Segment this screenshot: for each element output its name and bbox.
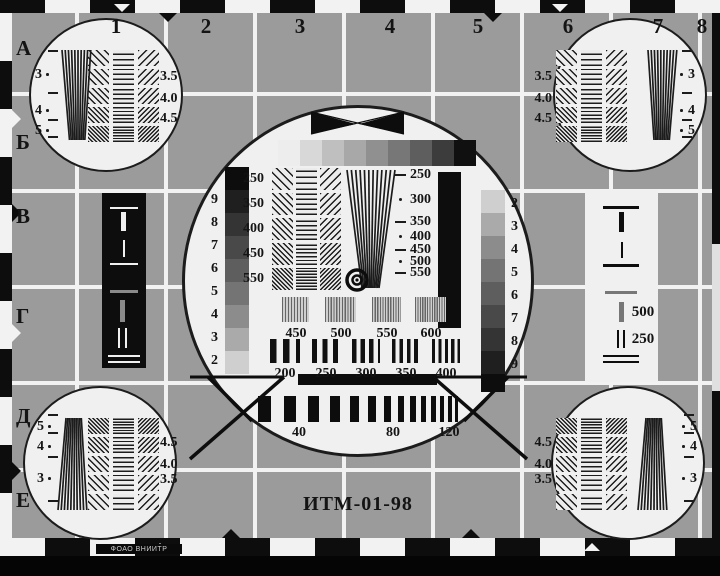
mira-grating-cell	[272, 193, 293, 215]
corner-grating-cell	[88, 69, 109, 85]
grayscale-strip-step	[432, 140, 454, 166]
corner-grating-cell	[88, 107, 109, 123]
mira-grating-cell	[272, 168, 293, 190]
wedge-label-dot	[680, 73, 683, 76]
fine-grating-block	[325, 297, 356, 322]
column-number: 1	[104, 16, 128, 37]
mira-grating-cell	[272, 218, 293, 240]
corner-grating-cell	[88, 126, 109, 142]
corner-grating-cell	[556, 437, 577, 453]
wedge-scale-dot	[399, 198, 402, 201]
coarse-grating-block	[312, 339, 340, 363]
mira-grating-cell	[296, 218, 317, 240]
fine-grating-label: 600	[418, 327, 444, 341]
right-signal-gray-bar	[619, 302, 624, 322]
wedge-scale-tick	[395, 272, 406, 274]
corner-grating-cell	[556, 494, 577, 510]
corner-grating-cell	[88, 437, 109, 453]
mira-grating-cell	[296, 268, 317, 290]
mira-row-label: 350	[216, 197, 264, 211]
mira-row-label: 250	[216, 172, 264, 186]
corner-grating-cell	[581, 475, 602, 491]
wedge-tick	[48, 456, 58, 458]
right-bar-label: 500	[630, 305, 656, 320]
corner-grating-cell	[556, 456, 577, 472]
corner-grating-cell	[138, 475, 159, 491]
right-signal-double-line	[623, 330, 626, 348]
left-staircase-label: 3	[194, 331, 218, 345]
corner-grating-cell	[88, 475, 109, 491]
corner-grating-cell	[606, 456, 627, 472]
corner-grating-cell	[581, 126, 602, 142]
fine-grating-label: 500	[328, 327, 354, 341]
right-staircase-step	[481, 236, 505, 259]
left-signal-thin-line	[123, 240, 126, 257]
corner-grating-cell	[138, 494, 159, 510]
coarse-grating-block	[432, 339, 460, 363]
pulse-width-label: 120	[438, 426, 460, 440]
left-staircase-label: 5	[194, 285, 218, 299]
wedge-tick	[682, 119, 692, 121]
wedge-tick	[684, 456, 694, 458]
right-staircase-label: 7	[511, 312, 535, 326]
corner-grating-cell	[138, 69, 159, 85]
mira-grating-cell	[272, 243, 293, 265]
mira-grating-cell	[320, 168, 341, 190]
right-signal-tick	[603, 264, 639, 267]
corner-grating-cell	[606, 69, 627, 85]
wedge-label-dot	[682, 477, 685, 480]
grayscale-strip-step	[388, 140, 410, 166]
right-staircase-step	[481, 351, 505, 374]
corner-grating-cell	[113, 437, 134, 453]
corner-grating-cell	[606, 494, 627, 510]
pulse-bar	[440, 396, 444, 422]
grayscale-strip-step	[344, 140, 366, 166]
border-notch-down-white	[114, 4, 130, 12]
corner-grating-cell	[113, 456, 134, 472]
corner-grating-cell	[556, 126, 577, 142]
column-number: 2	[194, 16, 218, 37]
corner-grating-cell	[138, 88, 159, 104]
right-staircase-step	[481, 305, 505, 328]
column-number: 5	[466, 16, 490, 37]
mira-grating-cell	[296, 168, 317, 190]
row-letter: Г	[16, 306, 40, 327]
corner-wedge-label: 3	[688, 68, 710, 82]
corner-grating-cell	[113, 107, 134, 123]
right-staircase-label: 2	[511, 197, 535, 211]
mira-grating-cell	[272, 268, 293, 290]
corner-grating-cell	[88, 494, 109, 510]
corner-grating-label: 4.5	[160, 436, 188, 450]
corner-grating-cell	[556, 50, 577, 66]
border-notch-up-black	[222, 529, 240, 538]
fine-grating-label: 550	[374, 327, 400, 341]
border-notch-right-black	[12, 462, 21, 480]
border-notch-down-white	[552, 4, 568, 12]
wedge-scale-label: 300	[410, 193, 444, 207]
right-signal-double-line	[617, 330, 620, 348]
corner-grating-cell	[113, 69, 134, 85]
pulse-bar	[431, 396, 436, 422]
right-staircase-label: 6	[511, 289, 535, 303]
corner-grating-cell	[606, 475, 627, 491]
column-number: 3	[288, 16, 312, 37]
wedge-scale-tick	[395, 221, 406, 223]
right-signal-double-tick	[603, 355, 639, 357]
wedge-tick	[48, 92, 58, 94]
coarse-grating-label: 300	[353, 367, 379, 381]
row-letter: А	[16, 38, 40, 59]
grayscale-strip-step	[366, 140, 388, 166]
left-signal-gray-tick	[110, 290, 138, 293]
wedge-scale-label: 550	[410, 266, 444, 280]
corner-grating-cell	[88, 88, 109, 104]
wedge-label-dot	[680, 109, 683, 112]
corner-grating-cell	[556, 107, 577, 123]
border-right	[712, 13, 720, 538]
corner-grating-cell	[556, 88, 577, 104]
mira-grating-cell	[320, 243, 341, 265]
wedge-scale-dot	[399, 260, 402, 263]
corner-wedge-label: 4	[688, 104, 710, 118]
corner-grating-cell	[606, 418, 627, 434]
grayscale-strip-step	[322, 140, 344, 166]
corner-wedge-label: 3	[20, 68, 42, 82]
border-left	[0, 13, 12, 538]
fine-grating-block	[372, 297, 401, 322]
corner-grating-cell	[606, 126, 627, 142]
coarse-grating-label: 250	[313, 367, 339, 381]
corner-grating-cell	[581, 456, 602, 472]
corner-grating-cell	[581, 494, 602, 510]
corner-wedge-label: 5	[22, 420, 44, 434]
right-staircase-step	[481, 328, 505, 351]
wedge-tick	[48, 50, 58, 52]
pulse-bar	[410, 396, 416, 422]
corner-grating-cell	[606, 88, 627, 104]
left-signal-double-tick	[108, 355, 140, 357]
fine-grating-label: 450	[283, 327, 309, 341]
left-staircase-label: 6	[194, 262, 218, 276]
corner-grating-cell	[113, 126, 134, 142]
wedge-label-dot	[48, 477, 51, 480]
grayscale-strip-step	[410, 140, 432, 166]
corner-grating-cell	[88, 456, 109, 472]
left-staircase-label: 8	[194, 216, 218, 230]
corner-grating-cell	[606, 50, 627, 66]
border-bottom-black-bar	[0, 556, 720, 576]
coarse-grating-label: 350	[393, 367, 419, 381]
corner-grating-label: 4.0	[160, 458, 188, 472]
right-signal-tick	[603, 206, 639, 209]
coarse-grating-block	[352, 339, 380, 363]
corner-grating-label: 4.0	[524, 92, 552, 106]
pulse-bar	[368, 396, 376, 422]
wedge-label-dot	[680, 129, 683, 132]
left-staircase-label: 9	[194, 193, 218, 207]
grayscale-strip-step	[278, 140, 300, 166]
corner-grating-cell	[556, 475, 577, 491]
wedge-scale-tick	[395, 249, 406, 251]
corner-grating-cell	[556, 69, 577, 85]
corner-grating-cell	[138, 418, 159, 434]
pulse-bar	[398, 396, 404, 422]
left-staircase-step	[225, 328, 249, 351]
fine-grating-block	[282, 297, 309, 322]
right-staircase-label: 4	[511, 243, 535, 257]
right-signal-gray-tick	[605, 291, 637, 294]
pulse-bar	[455, 396, 458, 422]
column-number: 7	[646, 16, 670, 37]
grayscale-strip-step	[300, 140, 322, 166]
wedge-scale-dot	[399, 235, 402, 238]
corner-grating-cell	[113, 50, 134, 66]
left-signal-thick-line	[121, 212, 126, 231]
corner-grating-label: 3.5	[160, 473, 188, 487]
imprint-label: ФОАО ВНИИТР	[111, 546, 168, 553]
corner-grating-cell	[556, 418, 577, 434]
right-staircase-step	[481, 190, 505, 213]
right-staircase-step	[481, 259, 505, 282]
corner-grating-cell	[581, 437, 602, 453]
left-staircase-step	[225, 305, 249, 328]
corner-wedge-label: 3	[22, 472, 44, 486]
wedge-label-dot	[682, 425, 685, 428]
mira-grating-cell	[296, 193, 317, 215]
coarse-grating-block	[392, 339, 420, 363]
right-staircase-label: 9	[511, 358, 535, 372]
corner-grating-label: 4.5	[524, 436, 552, 450]
left-signal-double-line	[118, 328, 121, 348]
left-signal-double-line	[125, 328, 128, 348]
mira-row-label: 400	[216, 222, 264, 236]
corner-grating-cell	[581, 107, 602, 123]
corner-grating-cell	[606, 437, 627, 453]
corner-wedge-label: 4	[22, 440, 44, 454]
wedge-label-dot	[48, 445, 51, 448]
mira-grating-cell	[320, 268, 341, 290]
right-staircase-label: 5	[511, 266, 535, 280]
wedge-tick	[684, 500, 694, 502]
corner-grating-cell	[88, 418, 109, 434]
left-staircase-label: 4	[194, 308, 218, 322]
coarse-grating-label: 400	[433, 367, 459, 381]
pulse-bar	[421, 396, 426, 422]
corner-grating-cell	[581, 69, 602, 85]
corner-wedge-label: 3	[690, 472, 712, 486]
right-double-line-label: 250	[630, 332, 656, 347]
pulse-bar	[384, 396, 391, 422]
left-staircase-step	[225, 351, 249, 374]
wedge-tick	[48, 414, 58, 416]
wedge-tick	[48, 119, 58, 121]
left-signal-gray-bar	[120, 300, 125, 322]
corner-wedge-label: 4	[20, 104, 42, 118]
left-staircase-label: 2	[194, 354, 218, 368]
right-signal-thin-line	[621, 242, 623, 258]
wedge-tick	[48, 136, 58, 138]
corner-grating-cell	[113, 88, 134, 104]
mira-grating-cell	[296, 243, 317, 265]
column-number: 4	[378, 16, 402, 37]
corner-wedge-label: 4	[690, 440, 712, 454]
left-staircase-label: 7	[194, 239, 218, 253]
corner-grating-cell	[138, 107, 159, 123]
pulse-bar	[448, 396, 452, 422]
wedge-label-dot	[46, 109, 49, 112]
mira-row-label: 450	[216, 247, 264, 261]
corner-wedge-label: 5	[690, 420, 712, 434]
left-signal-double-tick	[108, 361, 140, 363]
corner-grating-label: 4.0	[160, 92, 188, 106]
mira-grating-cell	[320, 218, 341, 240]
wedge-scale-tick	[395, 174, 406, 176]
wedge-label-dot	[46, 73, 49, 76]
mira-grating-cell	[320, 193, 341, 215]
border-notch-up-white	[584, 543, 600, 551]
right-signal-thick-line	[619, 212, 624, 232]
fine-grating-block	[415, 297, 446, 322]
row-letter: Е	[16, 490, 40, 511]
wedge-tick	[684, 414, 694, 416]
chart-title: ИТМ-01-98	[256, 494, 460, 514]
corner-grating-cell	[606, 107, 627, 123]
pulse-bar	[258, 396, 271, 422]
corner-grating-cell	[581, 50, 602, 66]
corner-grating-cell	[138, 437, 159, 453]
corner-grating-label: 4.5	[524, 112, 552, 126]
wedge-scale-label: 350	[410, 215, 444, 229]
corner-grating-label: 4.0	[524, 458, 552, 472]
right-staircase-label: 3	[511, 220, 535, 234]
corner-grating-cell	[138, 50, 159, 66]
row-letter: В	[16, 206, 40, 227]
wedge-label-dot	[46, 129, 49, 132]
right-signal-double-tick	[603, 361, 639, 363]
border-notch-up-black	[462, 529, 480, 538]
corner-grating-cell	[113, 418, 134, 434]
right-staircase-label: 8	[511, 335, 535, 349]
corner-grating-label: 3.5	[160, 70, 188, 84]
pulse-bar	[350, 396, 359, 422]
corner-grating-label: 3.5	[524, 473, 552, 487]
wedge-tick	[682, 92, 692, 94]
right-staircase-black-block	[481, 374, 505, 392]
corner-wedge-label: 5	[20, 124, 42, 138]
wedge-tick	[48, 432, 58, 434]
right-staircase-step	[481, 282, 505, 305]
column-number: 6	[556, 16, 580, 37]
corner-grating-cell	[88, 50, 109, 66]
border-notch-down-black	[159, 13, 177, 22]
corner-grating-label: 4.5	[160, 112, 188, 126]
column-number: 8	[690, 16, 714, 37]
wedge-scale-label: 250	[410, 168, 444, 182]
pulse-bar	[330, 396, 340, 422]
coarse-grating-label: 200	[272, 367, 298, 381]
left-signal-tick	[110, 207, 138, 209]
wedge-tick	[48, 500, 58, 502]
pulse-width-label: 40	[288, 426, 310, 440]
corner-grating-cell	[581, 418, 602, 434]
mira-row-label: 550	[216, 272, 264, 286]
wedge-label-dot	[682, 445, 685, 448]
border-top	[0, 0, 720, 13]
pulse-bar	[284, 396, 296, 422]
corner-grating-cell	[138, 126, 159, 142]
corner-grating-cell	[138, 456, 159, 472]
corner-grating-cell	[581, 88, 602, 104]
coarse-grating-block	[270, 339, 300, 363]
wedge-label-dot	[48, 425, 51, 428]
right-staircase-step	[481, 213, 505, 236]
corner-grating-cell	[113, 475, 134, 491]
test-card: ИТМ-01-98 ФОАО ВНИИТР 12345678АБВГДЕ3453…	[0, 0, 720, 576]
pulse-bar	[308, 396, 319, 422]
corner-grating-cell	[113, 494, 134, 510]
border-notch-down-white	[337, 4, 353, 12]
wedge-tick	[682, 50, 692, 52]
grayscale-strip-step	[454, 140, 476, 166]
pulse-width-label: 80	[382, 426, 404, 440]
corner-wedge-label: 5	[688, 124, 710, 138]
corner-grating-label: 3.5	[524, 70, 552, 84]
imprint-badge: ФОАО ВНИИТР	[96, 544, 182, 554]
left-signal-tick	[110, 263, 138, 265]
